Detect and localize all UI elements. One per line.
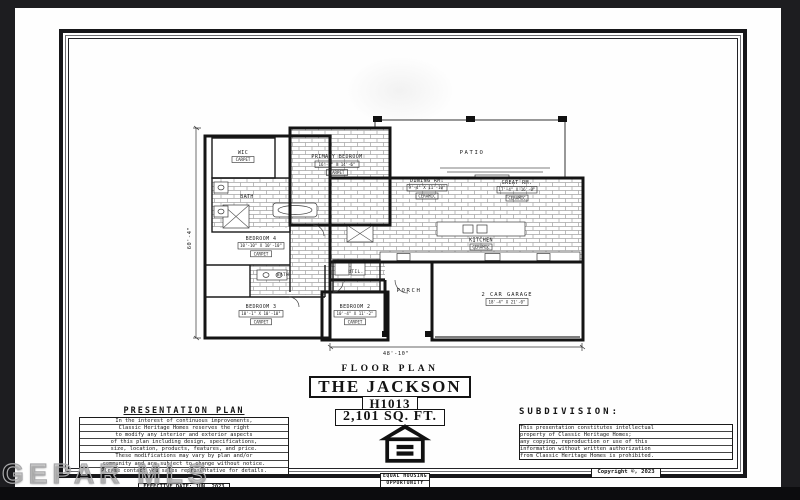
room-label-patio: PATIO (460, 150, 485, 156)
subdivision-label: SUBDIVISION: (519, 407, 733, 417)
svg-text:CARPET: CARPET (254, 319, 269, 324)
room-label-utility: UTIL. (348, 269, 363, 275)
svg-text:CERAMIC: CERAMIC (508, 196, 526, 201)
equal-housing-logo: EQUAL HOUSING OPPORTUNITY (367, 420, 443, 489)
svg-text:10'-4" X 11'-2": 10'-4" X 11'-2" (337, 311, 374, 316)
svg-text:CERAMIC: CERAMIC (418, 194, 436, 199)
svg-text:17'-4" X 16'-0": 17'-4" X 16'-0" (499, 187, 536, 192)
mls-watermark: GEPAR MLS (2, 458, 211, 490)
dim-height: 60'-4" (187, 227, 193, 249)
plan-name: THE JACKSON (309, 376, 470, 398)
equal-housing-house-icon (375, 420, 435, 466)
svg-text:GREAT RM.: GREAT RM. (502, 180, 533, 186)
svg-text:CARPET: CARPET (348, 319, 363, 324)
copyright-text: This presentation constitutes intellectu… (519, 424, 733, 460)
svg-text:16'-0" X 14'-6": 16'-0" X 14'-6" (319, 162, 356, 167)
copyright-notice: Copyright ©, 2023 (591, 468, 660, 478)
svg-text:CARPET: CARPET (254, 251, 269, 256)
svg-text:BEDROOM 4: BEDROOM 4 (246, 236, 277, 242)
subdivision-block: SUBDIVISION: This presentation constitut… (519, 407, 733, 478)
svg-text:BATH: BATH (277, 272, 289, 278)
equal-housing-text: EQUAL HOUSING OPPORTUNITY (380, 473, 430, 488)
room-label-bath2: BATH (277, 272, 289, 278)
svg-text:CARPET: CARPET (330, 170, 345, 175)
room-patio: PATIO (373, 116, 567, 178)
room-label-primary-bath: BATH (240, 194, 254, 200)
svg-text:2 CAR GARAGE: 2 CAR GARAGE (482, 292, 533, 298)
presentation-plan-heading: PRESENTATION PLAN (79, 406, 289, 416)
svg-text:PRIMARY BEDROOM: PRIMARY BEDROOM (311, 154, 362, 160)
floor-hatch-great (330, 178, 583, 262)
svg-text:CARPET: CARPET (236, 157, 251, 162)
room-label-porch: PORCH (397, 288, 422, 294)
svg-text:PORCH: PORCH (397, 288, 422, 294)
svg-text:DINING RM.: DINING RM. (410, 178, 444, 184)
svg-text:BEDROOM 3: BEDROOM 3 (246, 304, 277, 310)
svg-text:10'-10" X 10'-10": 10'-10" X 10'-10" (240, 243, 282, 248)
title-block: FLOOR PLAN THE JACKSON H1013 2,101 SQ. F… (280, 364, 500, 426)
room-label-garage: 2 CAR GARAGE 18'-4" X 21'-0" (482, 292, 533, 306)
svg-text:BEDROOM 2: BEDROOM 2 (340, 304, 371, 310)
svg-text:9'-4" X 11'-10": 9'-4" X 11'-10" (409, 185, 446, 190)
floor-plan-label: FLOOR PLAN (341, 364, 438, 374)
room-label-kitchen: KITCHEN CERAMIC (469, 238, 493, 251)
floor-plan-drawing: PATIO (185, 110, 605, 360)
svg-text:CERAMIC: CERAMIC (472, 245, 490, 250)
svg-text:18'-4" X 21'-0": 18'-4" X 21'-0" (489, 300, 526, 305)
svg-text:BATH: BATH (240, 194, 254, 200)
dim-width: 48'-10" (383, 351, 409, 357)
svg-text:UTIL.: UTIL. (348, 269, 363, 275)
svg-text:KITCHEN: KITCHEN (469, 238, 493, 244)
plan-sheet: PATIO (15, 8, 781, 487)
svg-text:10'-1" X 10'-10": 10'-1" X 10'-10" (241, 311, 280, 316)
svg-text:WIC: WIC (238, 150, 248, 156)
photo-canvas: PATIO (0, 0, 800, 500)
